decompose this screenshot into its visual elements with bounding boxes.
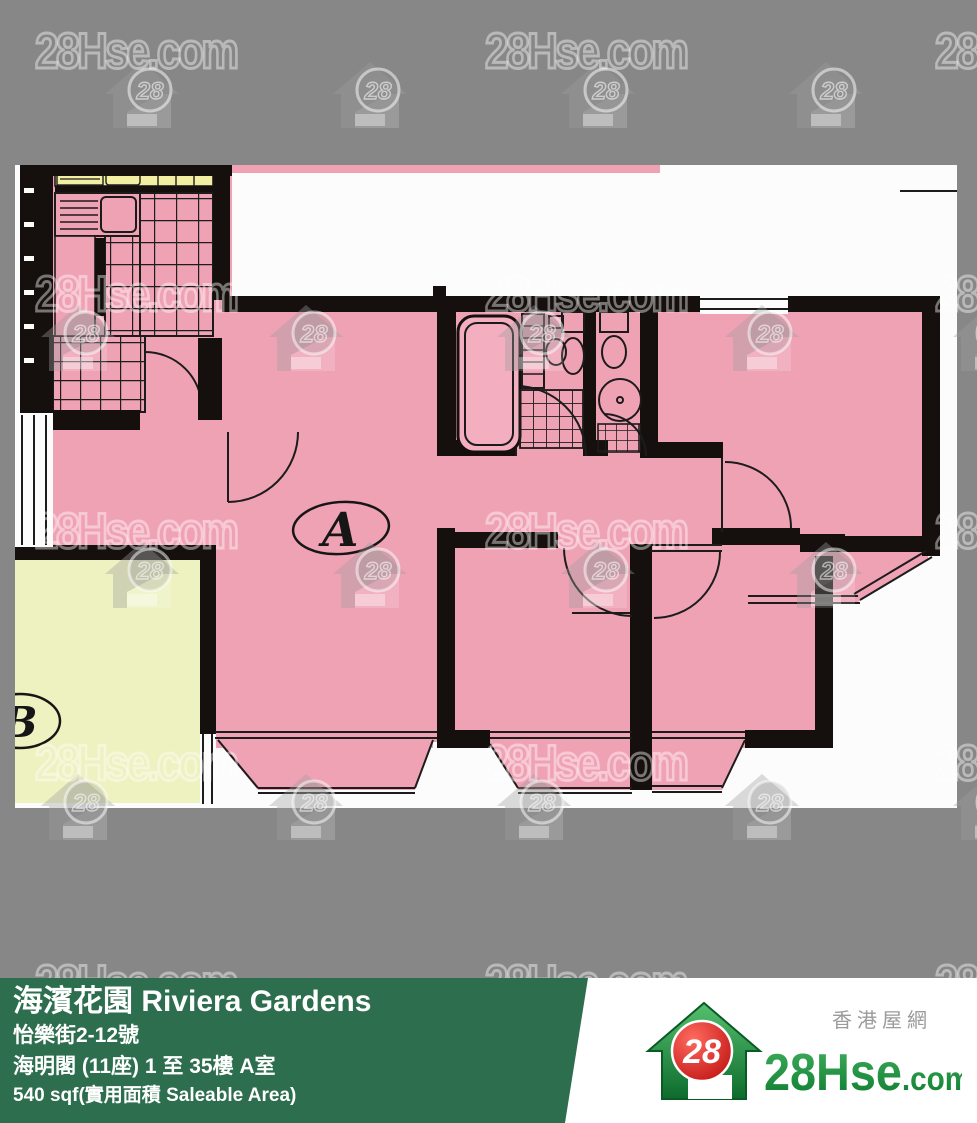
svg-text:28: 28 — [592, 78, 620, 105]
watermark-text: 28Hse.com — [35, 22, 236, 80]
kitchen-worktop — [55, 236, 95, 336]
unit-b-label: B — [15, 698, 38, 747]
logo-28-badge: 28 — [672, 1021, 732, 1081]
watermark-house-icon: 28 — [787, 60, 865, 130]
top-window — [700, 294, 788, 314]
logo-badge-text: 28 — [682, 1033, 721, 1071]
bathtub — [458, 316, 520, 452]
bathroom2-tiles — [598, 424, 640, 452]
watermark-text: 28Hse.com — [935, 22, 977, 80]
svg-text:28: 28 — [136, 78, 164, 105]
watermark-text: 28Hse.com — [485, 22, 686, 80]
screenshot-stage: A B 2828282828Hse.com28Hse.com28Hse.com2… — [0, 0, 977, 1123]
floorplan-svg: A B — [15, 165, 957, 808]
watermark-house-icon: 28 — [103, 60, 181, 130]
bathroom1-tiles — [520, 390, 583, 448]
unit-b-floor — [15, 545, 216, 806]
watermark-house-icon: 28 — [559, 60, 637, 130]
svg-text:28: 28 — [364, 78, 392, 105]
logo-brand-text: 28Hse.com — [764, 1044, 962, 1102]
svg-text:28: 28 — [820, 78, 848, 105]
kitchen-appliance — [101, 197, 136, 232]
svg-text:28Hse.com: 28Hse.com — [764, 1044, 962, 1102]
site-logo: 28 香港屋網 28Hse.com — [642, 995, 962, 1113]
logo-site-name-zh: 香港屋網 — [832, 1009, 932, 1032]
watermark-house-icon: 28 — [331, 60, 409, 130]
floorplan-page: A B — [15, 165, 957, 808]
unit-a-label: A — [318, 503, 358, 558]
